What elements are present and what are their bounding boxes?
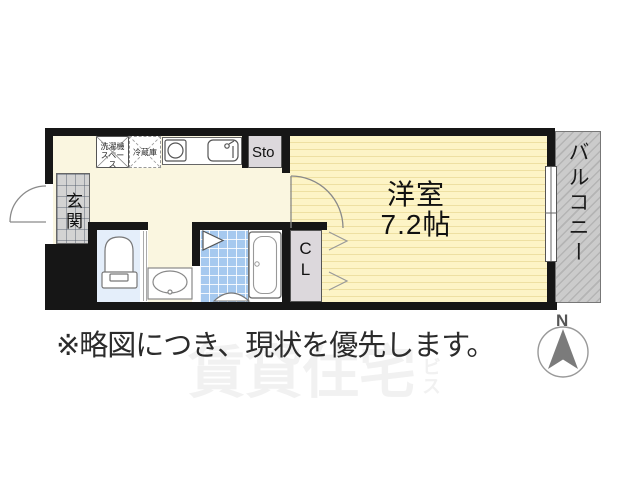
toilet-room-floor <box>97 230 140 302</box>
washer-space-label-line2: スペース <box>101 151 124 169</box>
wall-room-left-upper <box>282 128 290 173</box>
floorplan-page: 玄関 洗濯機 スペース 冷蔵庫 Sto CL 洋室 7.2帖 バルコニー 賃貸住… <box>0 0 640 480</box>
balcony-window <box>545 166 557 262</box>
western-room-title: 洋室 7.2帖 <box>346 180 486 240</box>
wall-bottom <box>45 302 557 310</box>
balcony-label: バルコニー <box>567 141 588 266</box>
toilet-door-area <box>140 230 148 302</box>
wall-bath-basin <box>192 222 200 266</box>
wall-top <box>45 128 555 136</box>
entrance-label: 玄関 <box>64 192 81 232</box>
wall-above-bath-closet <box>192 222 327 230</box>
washer-space-label-line1: 洗濯機 <box>101 142 125 151</box>
wall-storage-left <box>242 128 248 168</box>
bathtub-area-floor <box>248 230 282 302</box>
bathroom-door-area <box>192 266 200 302</box>
washer-space-label: 洗濯機 スペース <box>97 142 128 170</box>
closet-label: CL <box>299 238 312 281</box>
wall-left-upper <box>45 128 53 184</box>
wall-above-toilet <box>88 222 148 230</box>
wall-toilet-left <box>88 222 97 310</box>
refrigerator-label: 冷蔵庫 <box>130 148 160 157</box>
room-label: 洋室 <box>387 179 445 210</box>
kitchen-counter <box>162 137 242 165</box>
note-text: ※略図につき、現状を優先します。 <box>56 332 494 361</box>
compass-north-label: N <box>556 312 568 329</box>
compass-icon <box>538 327 588 377</box>
storage-label: Sto <box>252 145 275 160</box>
entrance-door-icon <box>10 186 46 222</box>
bathroom-floor <box>200 230 248 302</box>
watermark-text-small: ビス <box>420 357 439 395</box>
room-size-label: 7.2帖 <box>381 209 452 240</box>
wall-closet-left <box>282 228 290 310</box>
wall-right-upper <box>547 128 555 166</box>
wall-right-lower <box>547 262 555 310</box>
